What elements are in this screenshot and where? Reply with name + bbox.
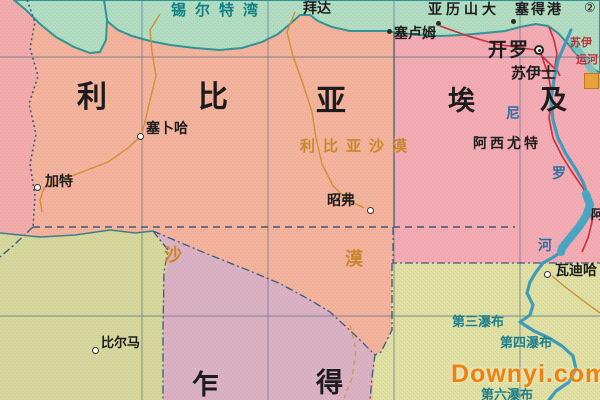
label-chad-char2: 得 <box>316 370 343 397</box>
label-chad-char1: 乍 <box>192 372 219 399</box>
label-sahara-char2: 漠 <box>345 250 363 268</box>
label-suez-canal-1: 苏伊 <box>570 38 592 49</box>
label-aswan-partial: 阿 <box>591 208 600 221</box>
label-libya-char3: 亚 <box>316 87 346 117</box>
label-footnote-2: ② <box>584 1 596 14</box>
label-egypt-char2: 及 <box>540 87 567 114</box>
city-marker-wadi-halfa <box>544 271 551 278</box>
label-cataract-6: 第六瀑布 <box>481 388 533 400</box>
label-wadi-halfa: 瓦迪哈 <box>555 263 597 277</box>
label-suez: 苏伊士 <box>511 66 556 81</box>
label-bilma: 比尔马 <box>101 336 140 349</box>
city-marker-ghat <box>34 184 41 191</box>
city-marker-sabha <box>137 133 144 140</box>
label-sabha: 塞卜哈 <box>146 121 188 135</box>
city-marker-sallum <box>387 29 392 34</box>
city-marker-jawf <box>367 207 374 214</box>
label-baida: 拜达 <box>303 1 331 15</box>
city-marker-bilma <box>92 347 99 354</box>
label-egypt-char1: 埃 <box>448 88 475 115</box>
sinai-color-patch <box>584 73 599 89</box>
label-cairo: 开罗 <box>488 41 530 60</box>
city-marker-port-said <box>511 19 516 24</box>
label-asyut: 阿西尤特 <box>473 136 541 150</box>
label-port-said: 塞得港 <box>515 2 563 16</box>
label-ghat: 加特 <box>45 174 73 188</box>
capital-marker-cairo <box>534 45 544 55</box>
label-nile-char3: 河 <box>538 238 552 252</box>
label-sahara-char1: 沙 <box>164 246 182 264</box>
label-nile-char1: 尼 <box>506 106 520 120</box>
watermark-text: Downyi.com <box>451 360 600 389</box>
label-alexandria: 亚历山大 <box>428 2 500 16</box>
label-cataract-3: 第三瀑布 <box>452 315 504 328</box>
label-gulf-of-sirte: 锡尔特湾 <box>171 3 267 18</box>
label-libyan-desert: 利比亚沙漠 <box>300 139 415 154</box>
label-suez-canal-2: 运河 <box>576 55 598 66</box>
label-cataract-4: 第四瀑布 <box>500 336 552 349</box>
label-nile-char2: 罗 <box>552 166 566 180</box>
label-jawf: 昭弗 <box>327 193 355 207</box>
city-marker-alexandria <box>436 21 441 26</box>
label-sallum: 塞卢姆 <box>394 26 436 40</box>
label-libya-char1: 利 <box>77 83 107 113</box>
label-libya-char2: 比 <box>198 83 228 113</box>
map-canvas: 锡尔特湾 拜达 亚历山大 塞得港 ② 塞卢姆 开罗 苏伊士 苏伊 运河 利 比 … <box>0 0 600 400</box>
